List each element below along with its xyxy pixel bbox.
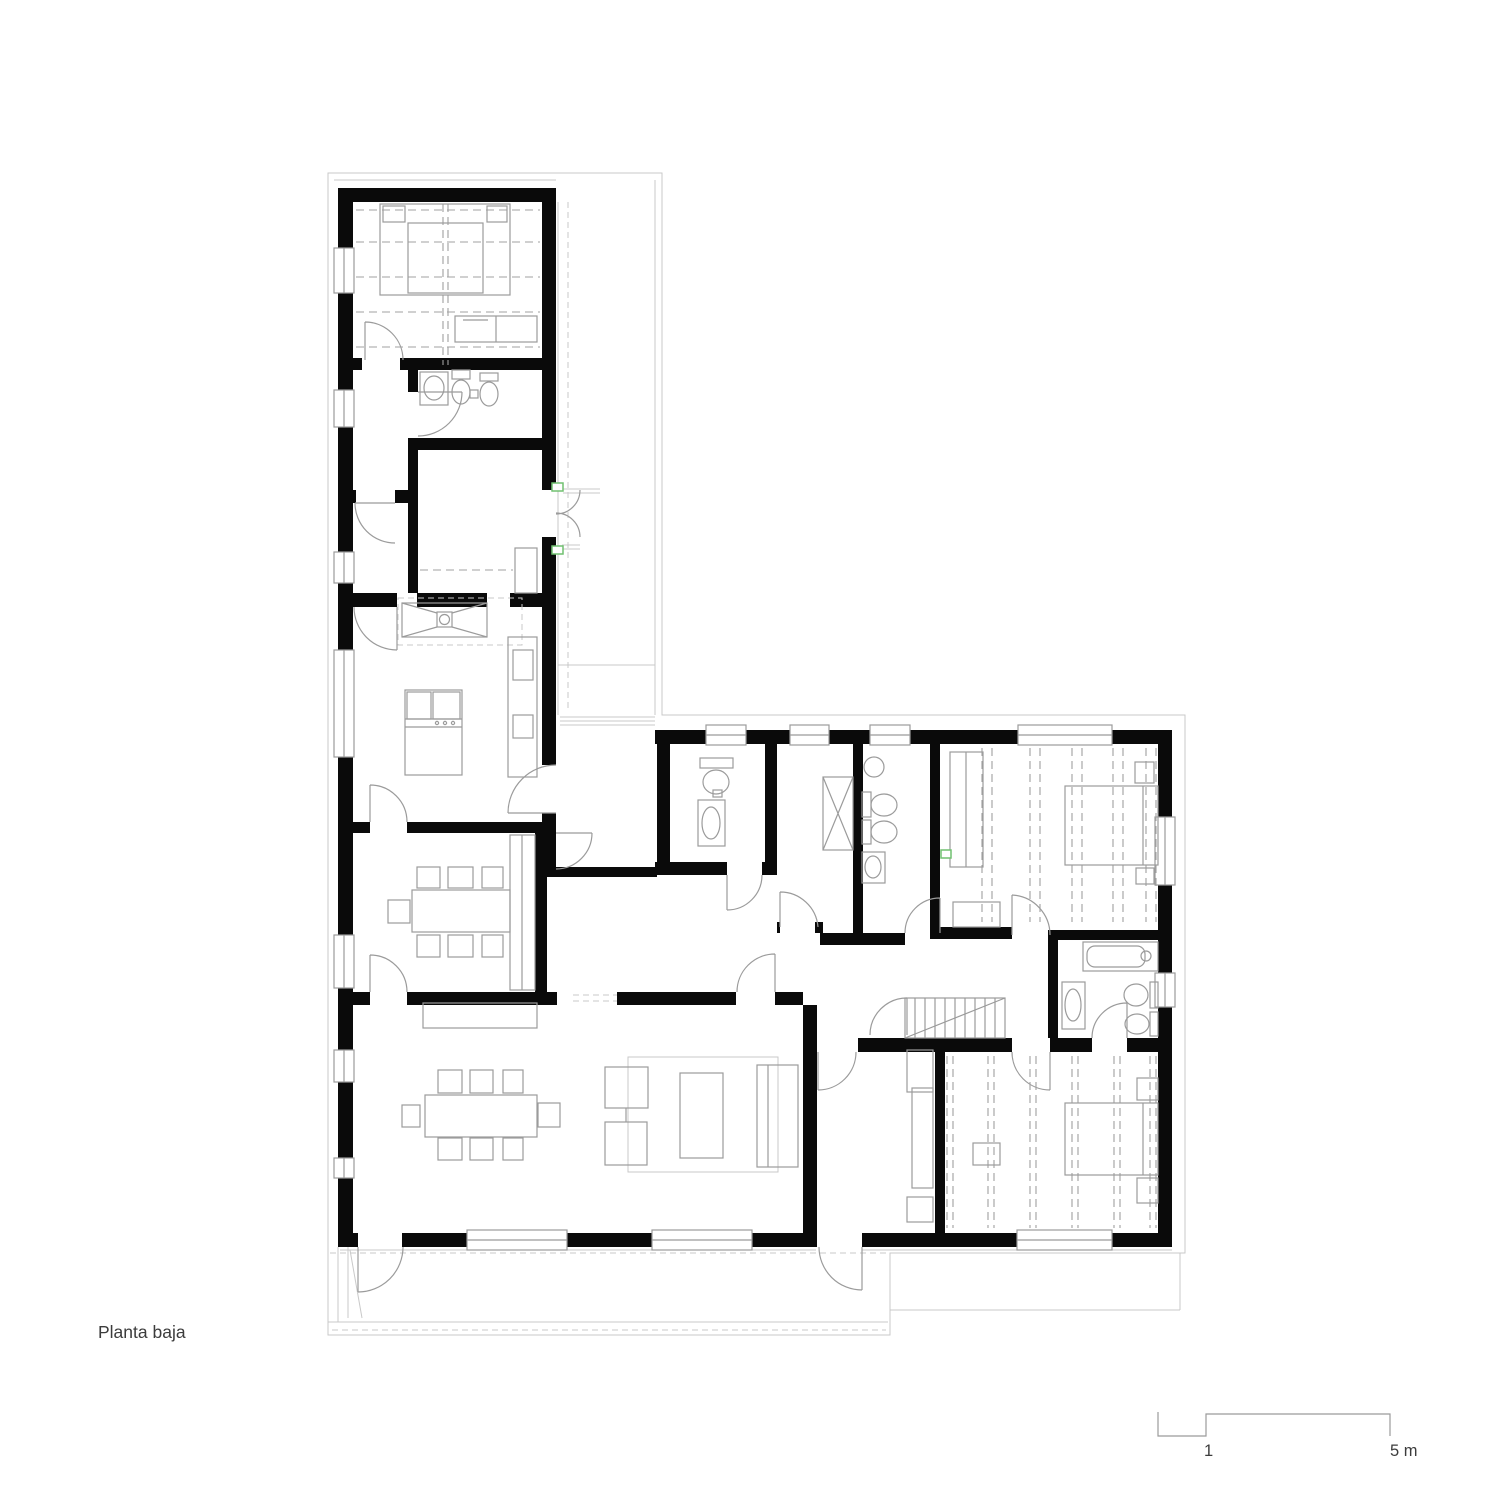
window (333, 248, 355, 293)
door (556, 833, 592, 869)
window (333, 552, 355, 583)
window (706, 724, 746, 746)
door (365, 322, 403, 360)
closet (455, 316, 537, 342)
door (1012, 1052, 1050, 1090)
window (1018, 724, 1112, 746)
double-bed (1065, 1103, 1158, 1175)
toilet (1124, 982, 1158, 1008)
floor-plan-drawing: Planta baja 1 5 m (0, 0, 1512, 1512)
window (870, 724, 910, 746)
door (737, 954, 775, 992)
window (790, 724, 829, 746)
table (412, 890, 510, 932)
door (354, 607, 397, 650)
stairs (905, 998, 1005, 1038)
sink (1062, 982, 1085, 1029)
bidet (862, 820, 897, 844)
door (870, 998, 907, 1035)
door (818, 1052, 856, 1090)
door (358, 1247, 403, 1292)
window (1017, 1229, 1112, 1251)
windows (333, 248, 1176, 1251)
meeting-room (388, 835, 535, 990)
window (333, 650, 355, 757)
bathroom-north (420, 370, 498, 406)
scale-tick-5m: 5 m (1390, 1442, 1418, 1460)
window (467, 1229, 567, 1251)
entry-strip (558, 180, 655, 725)
bedroom-southeast (947, 1056, 1158, 1228)
wc-middle (698, 758, 733, 846)
door (508, 765, 556, 813)
toilet (862, 792, 897, 817)
window (333, 1158, 355, 1178)
living-dining-room (402, 1003, 798, 1172)
bathtub (1083, 942, 1158, 971)
sofa-group (605, 1057, 798, 1172)
scale-tick-1: 1 (1204, 1442, 1213, 1460)
door (370, 785, 407, 822)
window (333, 1050, 355, 1082)
sink (420, 372, 448, 405)
window (333, 935, 355, 988)
bathroom-middle (862, 757, 897, 883)
door (727, 875, 762, 910)
bidet (1125, 1012, 1158, 1036)
floor-plan-page: Planta baja 1 5 m (0, 0, 1512, 1512)
door (418, 392, 462, 436)
door (1012, 895, 1050, 935)
sink (698, 800, 725, 846)
kitchen-counter (508, 637, 537, 777)
toilet (700, 758, 733, 794)
door (1092, 1003, 1127, 1038)
sink (862, 852, 885, 883)
kitchen (405, 637, 537, 777)
window (1154, 817, 1176, 885)
vent-marks (552, 483, 951, 858)
double-bed (380, 204, 510, 295)
stove-unit (405, 690, 462, 775)
door (355, 503, 395, 543)
window (652, 1229, 752, 1251)
dining-table (425, 1095, 537, 1137)
window (1154, 973, 1176, 1007)
window (333, 390, 355, 427)
bathroom-southeast (1062, 942, 1158, 1036)
shower-room (823, 777, 853, 850)
door (370, 955, 407, 992)
double-bed (1065, 786, 1158, 865)
door (780, 892, 818, 927)
bedroom-south-small (907, 1050, 933, 1222)
toilet (480, 373, 498, 406)
bedroom-northwest (356, 204, 540, 365)
scale-bar: 1 5 m (1158, 1412, 1418, 1460)
bedroom-northeast (950, 748, 1158, 927)
plan-title: Planta baja (98, 1322, 186, 1342)
